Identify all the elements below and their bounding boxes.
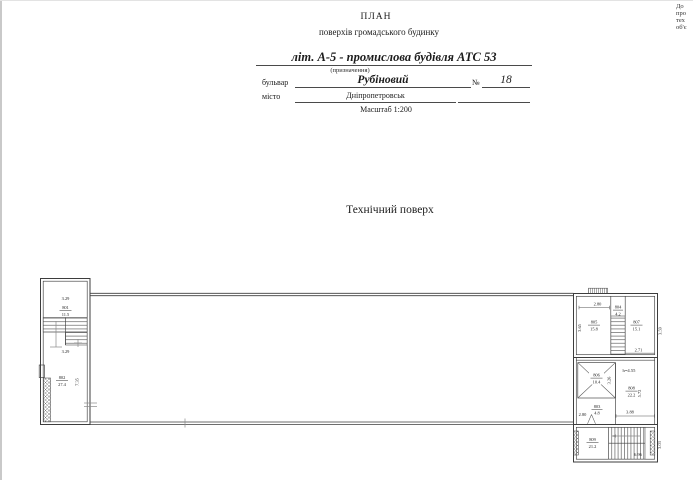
corner-note-line: про: [676, 10, 693, 17]
room-label-808: 808 22.2: [626, 386, 638, 398]
left-wall-door-niche: [39, 365, 44, 378]
city-row: місто Дніпропетровськ: [256, 90, 532, 103]
svg-text:808: 808: [628, 386, 635, 391]
street-row: бульвар Рубіновий № 18: [256, 74, 532, 88]
city-value: Дніпропетровськ: [295, 90, 456, 103]
svg-text:15.8: 15.8: [590, 326, 598, 331]
left-wing: 3.29 801 11.5 3.29 802 27.4 7.35: [39, 279, 97, 425]
room-label-803: 803 4.8: [592, 404, 603, 416]
house-number: 18: [482, 74, 530, 88]
dim-807-width: 2.71: [635, 347, 643, 352]
city-row-blank-line: [458, 90, 530, 103]
purpose-note: (призначення): [256, 67, 444, 74]
dim-809-height: 3.03: [657, 440, 662, 448]
dim-806-height: 3.26: [607, 376, 612, 384]
corner-note-line: До: [676, 3, 693, 10]
svg-text:11.5: 11.5: [62, 312, 70, 317]
building-designation: літ. А-5 - промислова будівля АТС 53: [256, 43, 532, 66]
door-swing-mark: [588, 415, 596, 424]
scale-note: Масштаб 1:200: [256, 105, 516, 114]
city-label: місто: [262, 92, 280, 101]
room-label-805: 805 15.8: [588, 320, 600, 332]
svg-text:809: 809: [589, 437, 596, 442]
svg-text:15.1: 15.1: [633, 326, 641, 331]
dim-808-height: 5.72: [637, 390, 642, 398]
svg-text:4.2: 4.2: [615, 311, 621, 316]
dim-left-mid: 3.29: [62, 349, 70, 354]
room-label-807: 807 15.1: [631, 320, 643, 332]
svg-text:22.2: 22.2: [628, 392, 636, 397]
roof-vent-stub: [589, 288, 608, 293]
dim-line-808-width: [616, 414, 655, 418]
svg-text:805: 805: [591, 320, 598, 325]
svg-text:27.4: 27.4: [58, 382, 66, 387]
floor-section-title: Технічний поверх: [300, 204, 480, 216]
scanned-floor-plan-page: { "corner_note": { "lines": ["До", "про"…: [0, 0, 693, 480]
dim-left-height: 7.35: [75, 377, 80, 385]
dim-left-top: 3.29: [62, 296, 70, 301]
upper-stair-shaft: [611, 316, 625, 355]
room-label-801: 801 11.5: [60, 305, 72, 317]
window-hatch-right: [650, 431, 655, 455]
svg-text:803: 803: [594, 404, 601, 409]
svg-text:801: 801: [62, 305, 69, 310]
ceiling-height-note: h=4.55: [623, 368, 637, 373]
dim-808-width: 3.88: [626, 410, 634, 415]
dim-805-height: 3.65: [577, 323, 582, 331]
window-hatch-left: [574, 431, 579, 455]
street-value: Рубіновий: [295, 74, 471, 88]
svg-text:804: 804: [615, 305, 622, 310]
corner-clipped-note: До про тех об'є: [676, 3, 693, 31]
room-label-809: 809 21.2: [587, 437, 599, 449]
floor-plan-drawing: 3.29 801 11.5 3.29 802 27.4 7.35: [0, 260, 693, 480]
svg-text:807: 807: [633, 320, 640, 325]
dim-right-top: 2.80: [594, 302, 602, 307]
street-label: бульвар: [262, 78, 288, 87]
svg-text:4.8: 4.8: [594, 411, 600, 416]
svg-text:802: 802: [59, 375, 66, 380]
shaft-hatch-left: [44, 378, 51, 422]
main-corridor: [90, 293, 574, 427]
svg-text:21.2: 21.2: [589, 444, 597, 449]
room-label-804: 804 4.2: [613, 305, 623, 317]
svg-text:10.4: 10.4: [593, 379, 601, 384]
corner-note-line: тех: [676, 17, 693, 24]
right-wing: 2.80 804 4.2 805 15.8 3.65 807 15.1 3.59…: [574, 288, 663, 462]
plan-title: ПЛАН: [256, 12, 532, 22]
room-label-802: 802 27.4: [56, 375, 68, 387]
corner-note-line: об'є: [676, 24, 693, 31]
plan-subtitle: поверхів громадського будинку: [256, 27, 532, 37]
left-staircase: [43, 318, 87, 348]
number-sign: №: [472, 78, 480, 87]
svg-text:806: 806: [593, 373, 600, 378]
dim-803-width: 2.80: [579, 412, 587, 417]
scan-edge-top: [0, 0, 693, 1]
dim-807-height: 3.59: [658, 326, 663, 334]
dim-809-width: 6.96: [634, 452, 642, 457]
